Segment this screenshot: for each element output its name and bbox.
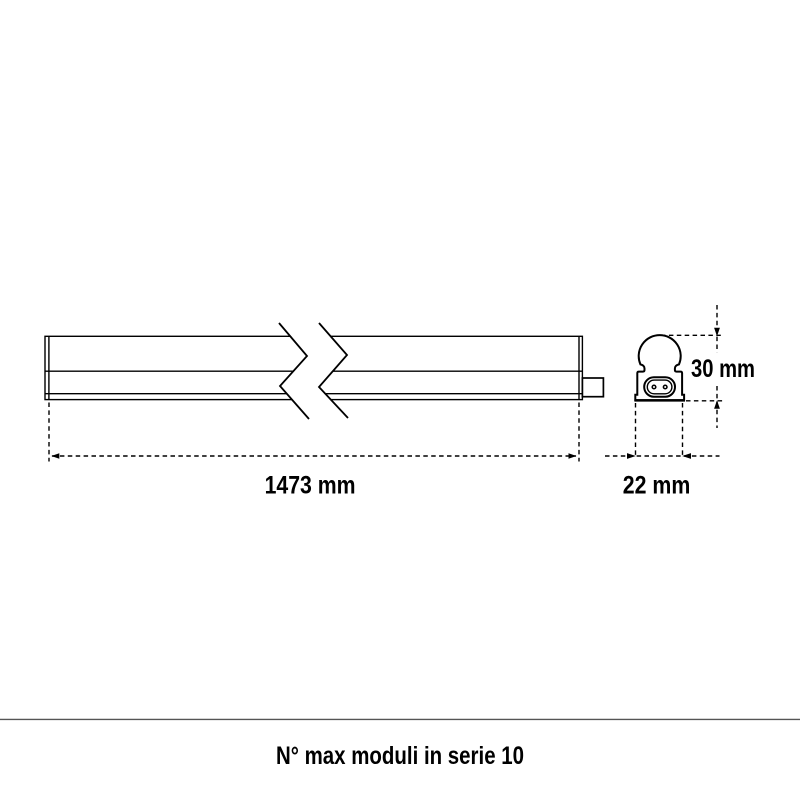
svg-text:N° max moduli in serie 10: N° max moduli in serie 10 [276, 742, 524, 770]
svg-text:30 mm: 30 mm [691, 355, 755, 383]
svg-text:1473 mm: 1473 mm [265, 472, 356, 500]
svg-text:22 mm: 22 mm [623, 472, 691, 500]
